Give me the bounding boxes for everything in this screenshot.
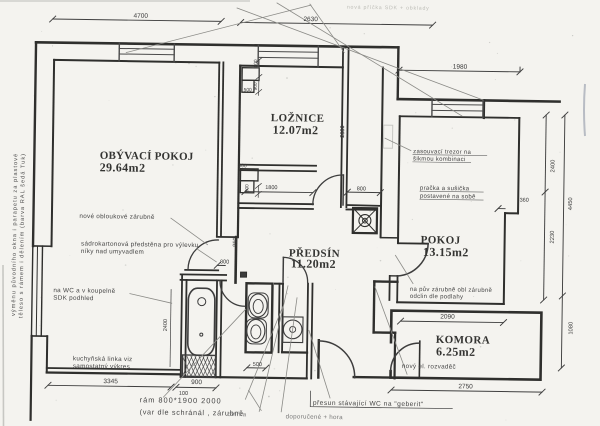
svg-text:11.20m2: 11.20m2 [291, 256, 336, 271]
svg-text:1080: 1080 [568, 322, 574, 335]
svg-text:2090: 2090 [440, 313, 455, 320]
svg-text:na pův zárubně obl zárubně: na pův zárubně obl zárubně [410, 286, 493, 294]
svg-text:2230: 2230 [550, 231, 556, 244]
svg-text:100: 100 [179, 391, 188, 397]
svg-text:dvířka: dvířka [228, 411, 247, 418]
svg-text:4450: 4450 [568, 197, 574, 210]
svg-text:2400: 2400 [163, 319, 169, 331]
svg-text:doporučené + hora: doporučené + hora [286, 413, 344, 421]
svg-text:3345: 3345 [103, 378, 118, 385]
svg-text:2750: 2750 [458, 383, 473, 390]
svg-text:2880: 2880 [340, 125, 346, 137]
svg-text:6.25m2: 6.25m2 [436, 344, 476, 359]
svg-text:SDK podhled: SDK podhled [53, 295, 94, 303]
svg-text:950: 950 [233, 237, 239, 246]
svg-text:nový el. rozvaděč: nový el. rozvaděč [402, 363, 456, 371]
svg-text:4700: 4700 [133, 13, 148, 20]
svg-text:800: 800 [357, 186, 366, 192]
svg-text:2630: 2630 [303, 16, 318, 23]
svg-text:nová příčka SDK + obklady: nová příčka SDK + obklady [347, 5, 430, 12]
svg-text:1980: 1980 [453, 64, 468, 71]
svg-text:odclin dle podlahy: odclin dle podlahy [410, 294, 464, 301]
svg-text:13.15m2: 13.15m2 [423, 245, 469, 260]
svg-text:níky nad umyvadlem: níky nad umyvadlem [81, 248, 144, 256]
svg-text:12.07m2: 12.07m2 [273, 123, 319, 138]
svg-text:500: 500 [253, 362, 262, 368]
svg-text:900: 900 [253, 82, 259, 90]
svg-text:samostatný výkres: samostatný výkres [73, 363, 130, 371]
svg-text:800: 800 [220, 259, 229, 265]
svg-text:1800: 1800 [265, 185, 277, 191]
svg-text:300: 300 [253, 59, 259, 67]
svg-text:800: 800 [244, 184, 250, 192]
svg-text:300: 300 [239, 163, 247, 169]
svg-text:2400: 2400 [550, 160, 556, 173]
svg-text:500: 500 [244, 87, 252, 93]
svg-text:29.64m2: 29.64m2 [100, 160, 146, 175]
svg-text:360: 360 [520, 198, 529, 204]
svg-text:nové obloukové zárubně: nové obloukové zárubně [79, 213, 155, 221]
svg-text:900: 900 [191, 379, 202, 386]
